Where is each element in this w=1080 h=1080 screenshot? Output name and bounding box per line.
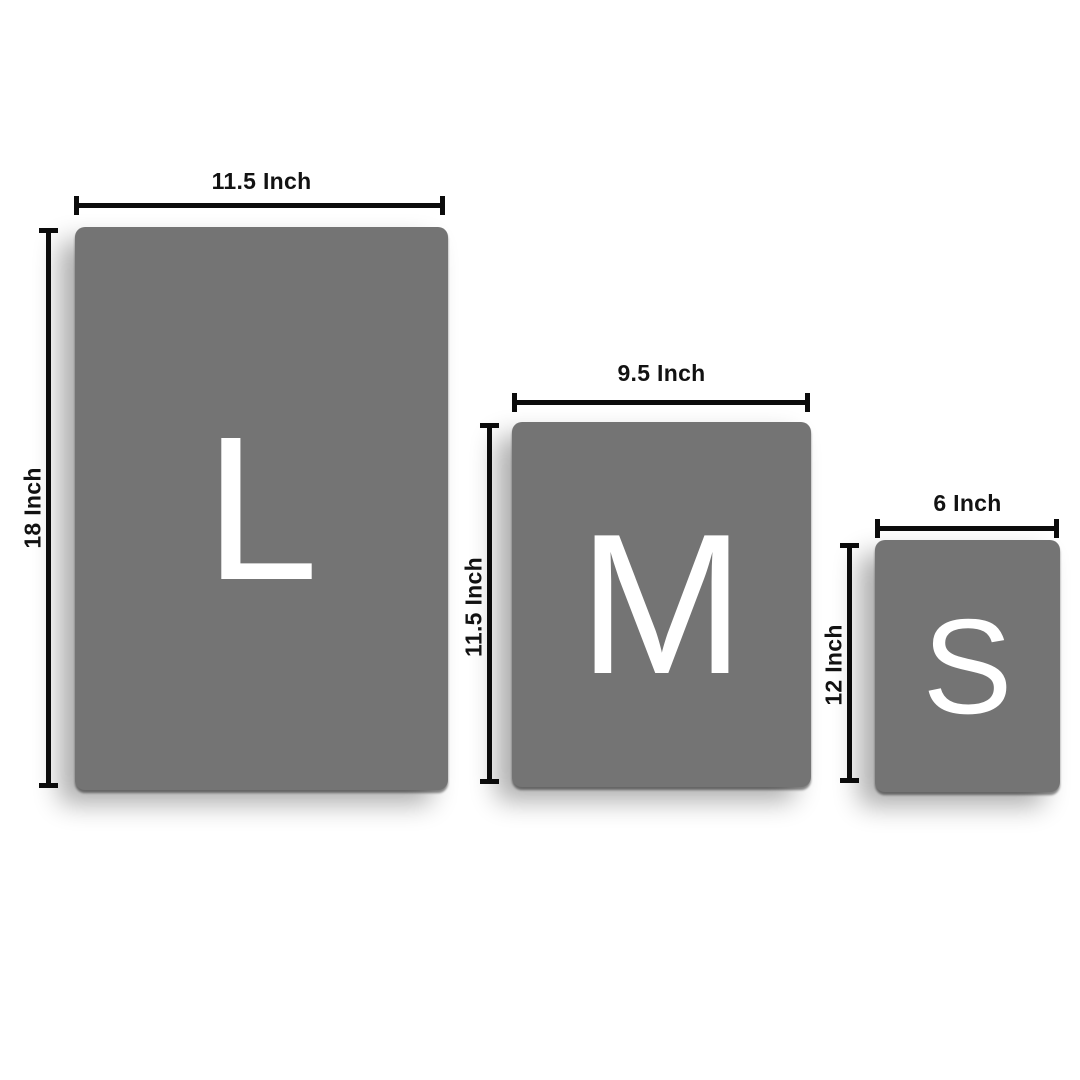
large-height-dimension-line (46, 228, 51, 788)
medium-height-dimension-line (487, 423, 492, 784)
size-card-small: S (875, 540, 1060, 792)
medium-height-dimension-label: 11.5 Inch (461, 557, 488, 657)
small-height-dimension-label: 12 Inch (821, 624, 848, 705)
small-height-dimension-line (847, 543, 852, 783)
size-card-medium: M (512, 422, 811, 787)
size-letter-medium: M (578, 505, 745, 705)
large-width-dimension-line (74, 203, 445, 208)
large-height-dimension-label: 18 Inch (20, 467, 47, 548)
size-card-large: L (75, 227, 448, 790)
small-width-dimension-label: 6 Inch (875, 490, 1060, 517)
medium-width-dimension-label: 9.5 Inch (512, 360, 811, 387)
medium-width-dimension-line (512, 400, 810, 405)
large-width-dimension-label: 11.5 Inch (75, 168, 448, 195)
size-comparison-diagram: 11.5 Inch 18 Inch L 9.5 Inch 11.5 Inch M… (0, 0, 1080, 1080)
size-letter-small: S (922, 599, 1012, 734)
size-letter-large: L (204, 406, 318, 611)
small-width-dimension-line (875, 526, 1059, 531)
